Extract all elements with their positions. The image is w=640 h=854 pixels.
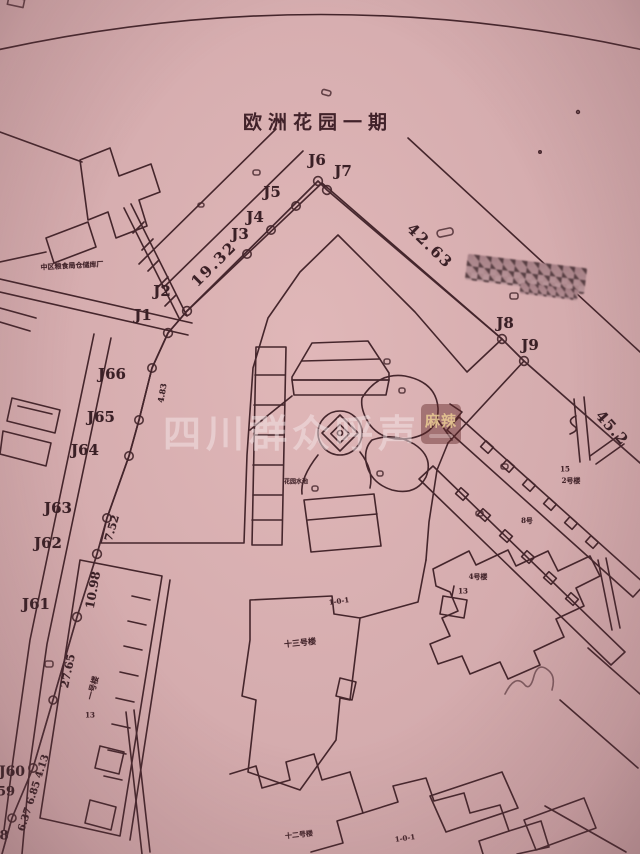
point-label-J59: 59 xyxy=(0,785,15,800)
building-no13 xyxy=(242,596,360,790)
left-small-buildings xyxy=(0,398,60,466)
point-label-J9: J9 xyxy=(521,336,539,354)
area-label-bldg2: 2号楼 xyxy=(562,476,581,486)
point-label-J1: J1 xyxy=(134,306,152,324)
point-label-J2: J2 xyxy=(153,282,171,300)
watermark-badge-label: 麻辣 xyxy=(425,410,457,431)
survey-point-dots xyxy=(8,177,528,822)
building-no1 xyxy=(40,560,170,854)
yellow-highlights xyxy=(45,89,553,694)
point-label-J62: J62 xyxy=(34,534,62,552)
area-label-garden: 花园水池 xyxy=(284,477,308,486)
point-label-J3: J3 xyxy=(231,225,249,243)
area-label-n13a: 13 xyxy=(85,711,95,720)
east-parcel-lines xyxy=(360,361,524,618)
point-label-J58: 8 xyxy=(0,829,9,844)
point-label-J65: J65 xyxy=(87,408,115,426)
point-label-J60: J60 xyxy=(0,764,25,780)
point-label-J6: J6 xyxy=(308,151,326,169)
bottom-buildings xyxy=(230,754,549,854)
area-label-bldg4: 4号楼 xyxy=(469,572,488,582)
point-label-J4: J4 xyxy=(246,208,264,226)
watermark-badge-subtext-bar xyxy=(429,434,453,438)
watermark-badge: 麻辣 xyxy=(421,404,461,444)
point-label-J63: J63 xyxy=(44,499,72,517)
point-label-J5: J5 xyxy=(263,183,281,201)
area-label-n15: 15 xyxy=(560,465,570,474)
topleft-buildings xyxy=(0,132,160,263)
point-label-J7: J7 xyxy=(334,162,352,180)
area-label-bldg8: 8号 xyxy=(521,516,533,526)
retaining-wall xyxy=(124,204,187,320)
map-photo: J6J7J5J4J3J2J1J66J65J64J63J62J61J60598J8… xyxy=(0,0,640,854)
page-title: 欧洲花园一期 xyxy=(243,108,393,135)
point-label-J61: J61 xyxy=(22,595,50,613)
area-label-n13b: 13 xyxy=(458,587,468,596)
point-label-J8: J8 xyxy=(496,314,514,332)
point-label-J64: J64 xyxy=(71,441,99,459)
topleft-roads xyxy=(0,129,303,335)
point-label-J66: J66 xyxy=(98,365,126,383)
watermark-text: 四川群众呼声 xyxy=(163,403,421,458)
